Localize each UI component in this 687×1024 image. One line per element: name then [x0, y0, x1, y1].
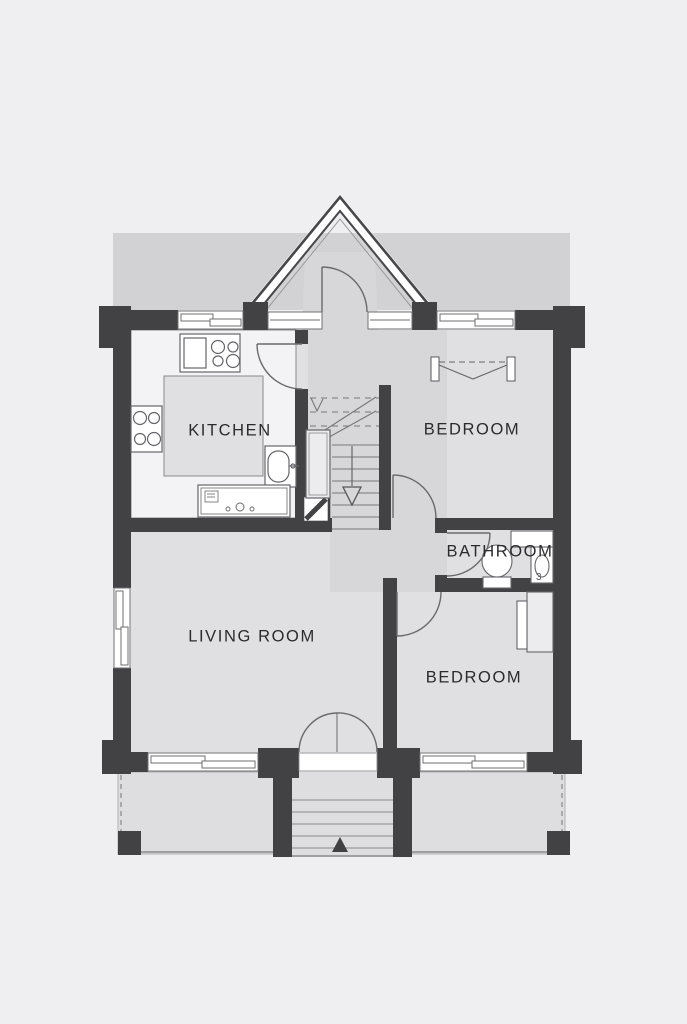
floor-plan: 3 KITCHEN BEDROOM BAT: [0, 0, 687, 1024]
room-label-living-room: LIVING ROOM: [188, 628, 316, 647]
kitchen-sink-icon: [265, 446, 299, 487]
room-label-bedroom-bottom: BEDROOM: [426, 669, 522, 688]
room-label-bathroom: BATHROOM: [447, 543, 554, 562]
bathroom-fixture-mark: 3: [536, 572, 542, 583]
living-room-side-window: [114, 588, 130, 668]
gable-sidelight-right: [368, 312, 412, 329]
bedroom-bottom-window: [420, 753, 527, 771]
porch-post-left: [118, 831, 141, 855]
porch-pier-right: [393, 772, 412, 857]
porch: [118, 772, 570, 857]
gable-sidelight-left: [268, 312, 322, 329]
dishwasher-icon: [198, 485, 290, 517]
room-label-kitchen: KITCHEN: [188, 422, 272, 441]
porch-post-right: [547, 831, 570, 855]
bedroom-top-window: [437, 311, 515, 329]
under-stair-closet: [306, 430, 330, 498]
porch-pier-left: [273, 772, 292, 857]
porch-slab-right: [402, 772, 565, 854]
floor-plan-drawing: 3: [0, 0, 687, 1024]
bedroom-bottom-wardrobe: [517, 592, 553, 652]
room-label-bedroom-top: BEDROOM: [424, 421, 520, 440]
kitchen-window: [178, 311, 243, 329]
living-room-bottom-window: [148, 753, 258, 771]
hob-icon: [131, 406, 162, 452]
porch-slab-left: [118, 772, 278, 854]
chimney: [303, 496, 329, 522]
stove-icon: [180, 334, 240, 372]
